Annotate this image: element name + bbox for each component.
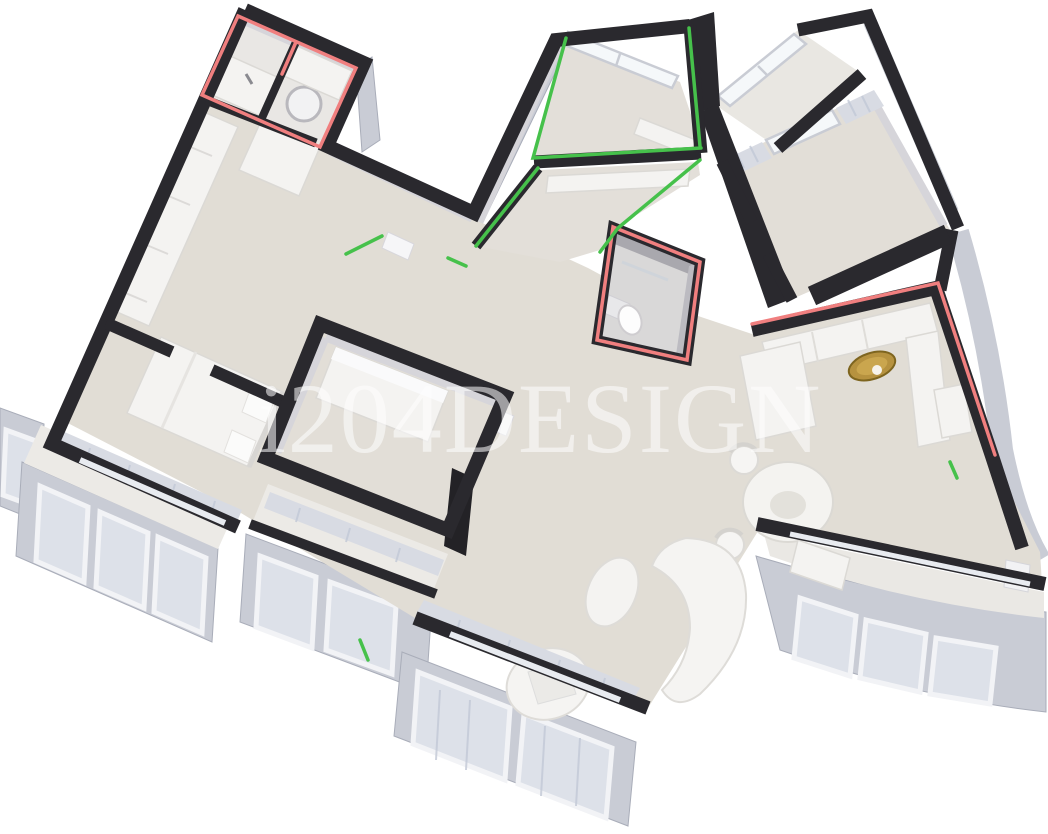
floor-plan-canvas: i204DESIGN [0, 0, 1048, 834]
watermark-text: i204DESIGN [258, 363, 822, 474]
round-basin [287, 87, 321, 121]
floor-plan-render: i204DESIGN [0, 0, 1048, 834]
window [860, 620, 926, 692]
sink-drain [872, 365, 882, 375]
dining-table-base [770, 491, 806, 519]
window [930, 638, 996, 704]
